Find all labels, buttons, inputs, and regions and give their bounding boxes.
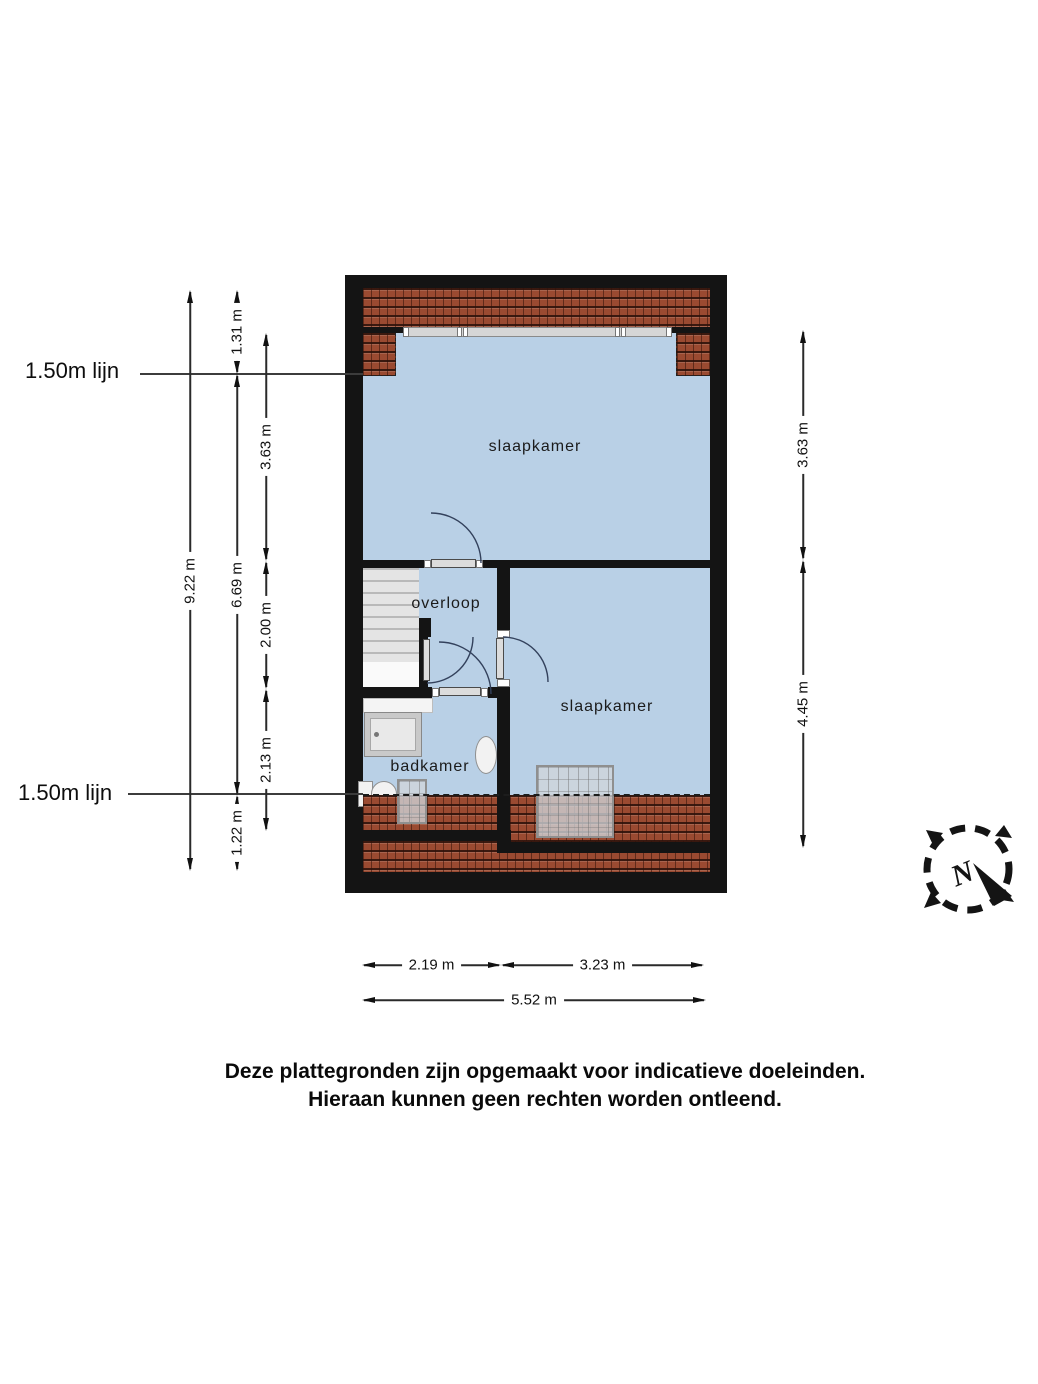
dim-label: 3.63 m (794, 416, 813, 474)
room-label-bedroom-top: slaapkamer (489, 438, 582, 456)
disclaimer-line-1: Deze plattegronden zijn opgemaakt voor i… (52, 1058, 1038, 1086)
height-line-label-top: 1.50m lijn (25, 358, 119, 384)
dim-3-23: 3.23 m (501, 957, 704, 973)
room-label-bedroom-bottom: slaapkamer (561, 698, 654, 716)
dim-label: 2.13 m (257, 731, 276, 789)
door-swing-arc (431, 513, 481, 563)
compass-icon: N (915, 816, 1021, 922)
dim-total-height: 9.22 m (182, 290, 198, 871)
room-label-landing: overloop (411, 595, 480, 613)
dim-label: 6.69 m (228, 556, 247, 614)
compass-tick-ne (995, 825, 1012, 838)
dim-6-69: 6.69 m (229, 374, 245, 795)
dim-label: 3.23 m (573, 957, 633, 974)
floor-plan: slaapkamer overloop badkamer slaapkamer (345, 275, 727, 893)
door-swing-arcs (345, 275, 727, 893)
room-label-bathroom: badkamer (390, 758, 469, 776)
dim-label: 2.19 m (402, 957, 462, 974)
door-swing-arc (439, 642, 491, 694)
dim-4-45: 4.45 m (795, 560, 811, 848)
dim-2-00: 2.00 m (258, 561, 274, 689)
dim-3-63-left: 3.63 m (258, 333, 274, 561)
door-swing-arc (503, 637, 548, 682)
dim-label: 5.52 m (504, 992, 564, 1009)
dim-3-63-right: 3.63 m (795, 330, 811, 560)
dim-label: 2.00 m (257, 596, 276, 654)
floorplan-page: slaapkamer overloop badkamer slaapkamer … (0, 0, 1038, 1384)
height-line-top (140, 373, 363, 375)
disclaimer: Deze plattegronden zijn opgemaakt voor i… (52, 1058, 1038, 1114)
dim-2-19: 2.19 m (362, 957, 501, 973)
disclaimer-line-2: Hieraan kunnen geen rechten worden ontle… (52, 1086, 1038, 1114)
dim-1-31: 1.31 m (229, 290, 245, 374)
dim-1-22: 1.22 m (229, 795, 245, 871)
dim-label: 1.31 m (228, 303, 247, 361)
height-line-label-bottom: 1.50m lijn (18, 780, 112, 806)
dim-2-13: 2.13 m (258, 689, 274, 831)
height-line-bottom (128, 793, 363, 795)
dim-label: 1.22 m (228, 804, 247, 862)
dim-label: 9.22 m (181, 552, 200, 610)
dim-label: 3.63 m (257, 418, 276, 476)
dim-label: 4.45 m (794, 675, 813, 733)
door-swing-arc (427, 637, 473, 683)
dim-5-52-total: 5.52 m (362, 992, 706, 1008)
